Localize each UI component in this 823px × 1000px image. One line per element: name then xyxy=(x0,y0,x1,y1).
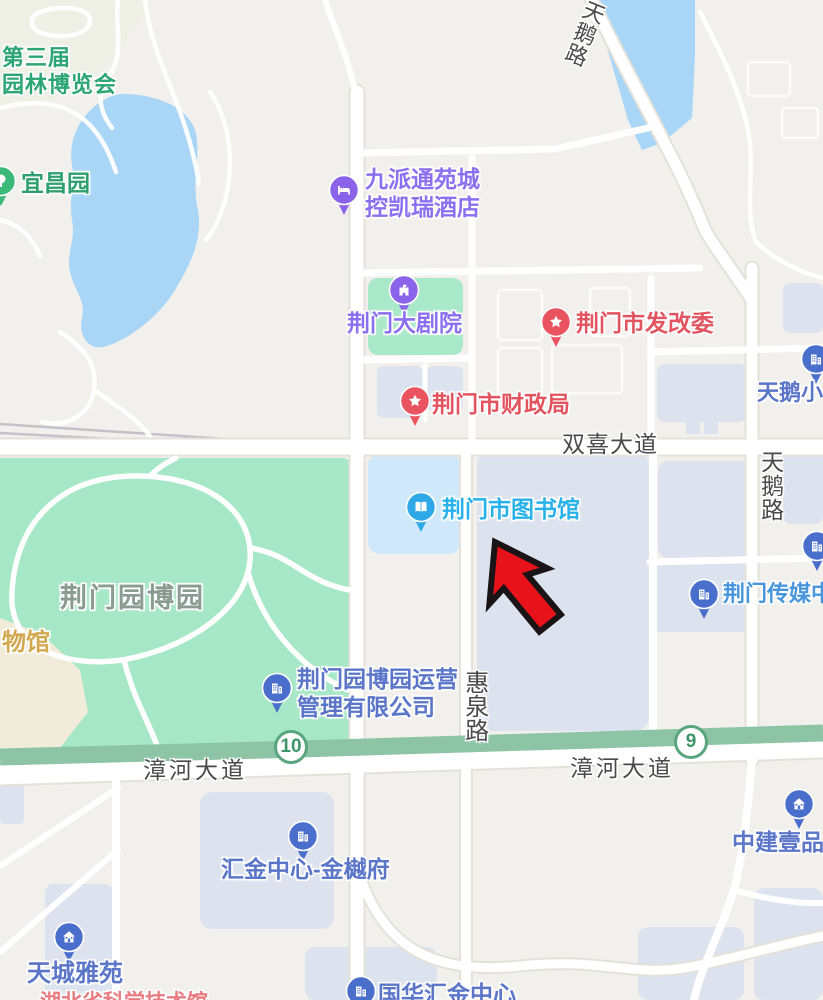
label-line: 荆门市财政局 xyxy=(432,391,570,419)
zhongjian-yipin-pin[interactable] xyxy=(782,788,816,830)
map-canvas[interactable]: 宜昌园九派通苑城控凯瑞酒店荆门大剧院荆门市发改委荆门市财政局荆门市图书馆荆门园博… xyxy=(0,0,823,1000)
book-icon xyxy=(416,502,427,512)
label-line: 管理有限公司 xyxy=(297,694,458,722)
label-line: 汇金中心-金樾府 xyxy=(221,856,390,884)
tiancheng-yayuan-label[interactable]: 天城雅苑 xyxy=(27,960,123,989)
yunying-company-label[interactable]: 荆门园博园运营管理有限公司 xyxy=(297,666,458,721)
jiupai-hotel-label[interactable]: 九派通苑城控凯瑞酒店 xyxy=(365,166,480,221)
map-overlay: 宜昌园九派通苑城控凯瑞酒店荆门大剧院荆门市发改委荆门市财政局荆门市图书馆荆门园博… xyxy=(0,0,823,1000)
guohua-huijin-label[interactable]: 国华汇金中心 xyxy=(378,981,516,1000)
label-line: 中建壹品 xyxy=(732,829,823,857)
area-label: 物馆 xyxy=(2,629,50,658)
jiupai-hotel-pin[interactable] xyxy=(327,174,361,216)
city-library-pin[interactable] xyxy=(404,491,438,533)
tiane-xiaoqu-label[interactable]: 天鹅小区 xyxy=(757,380,823,406)
media-center-pin[interactable] xyxy=(687,578,721,620)
caizhengju-label[interactable]: 荆门市财政局 xyxy=(432,391,570,419)
road-label: 漳河大道 xyxy=(143,757,247,785)
route-shield: 10 xyxy=(274,730,308,764)
tiane-xiaoqu-pin[interactable] xyxy=(799,343,823,385)
area-label: 荆门园博园 xyxy=(60,582,205,614)
fagaiwei-label[interactable]: 荆门市发改委 xyxy=(576,310,714,338)
road-label: 天鹅路 xyxy=(558,0,608,70)
road-label: 天鹅路 xyxy=(756,450,784,522)
area-label: 湖北省科学技术馆 xyxy=(40,990,208,1000)
grand-theater-label[interactable]: 荆门大剧院 xyxy=(347,310,462,338)
label-line: 控凯瑞酒店 xyxy=(365,194,480,222)
label-line: 荆门市发改委 xyxy=(576,310,714,338)
label-line: 天城雅苑 xyxy=(27,960,123,989)
guohua-huijin-pin[interactable] xyxy=(344,975,378,1000)
huijin-center-label[interactable]: 汇金中心-金樾府 xyxy=(221,856,390,884)
label-line: 荆门市图书馆 xyxy=(442,496,580,524)
label-line: 九派通苑城 xyxy=(365,166,480,194)
caizhengju-pin[interactable] xyxy=(398,385,432,427)
media-center-label[interactable]: 荆门传媒中心 xyxy=(723,581,823,607)
label-line: 宜昌园 xyxy=(21,170,90,198)
edge-poi-pin[interactable] xyxy=(800,530,823,572)
zhongjian-yipin-label[interactable]: 中建壹品 xyxy=(732,829,823,857)
label-line: 荆门大剧院 xyxy=(347,310,462,338)
city-library-label[interactable]: 荆门市图书馆 xyxy=(442,496,580,524)
area-label: 第三届 xyxy=(2,45,71,71)
area-label: 园林博览会 xyxy=(2,72,117,98)
label-line: 荆门园博园运营 xyxy=(297,666,458,694)
label-line: 天鹅小区 xyxy=(757,380,823,406)
route-shield: 9 xyxy=(674,725,708,759)
yichang-garden-pin[interactable] xyxy=(0,165,18,207)
tiancheng-yayuan-pin[interactable] xyxy=(52,921,86,963)
yichang-garden-label[interactable]: 宜昌园 xyxy=(21,170,90,198)
road-label: 双喜大道 xyxy=(562,431,658,459)
label-line: 荆门传媒中心 xyxy=(723,581,823,607)
fagaiwei-pin[interactable] xyxy=(539,306,573,348)
yunying-company-pin[interactable] xyxy=(260,672,294,714)
label-line: 国华汇金中心 xyxy=(378,981,516,1000)
road-label: 漳河大道 xyxy=(570,755,674,783)
road-label: 惠泉路 xyxy=(459,670,488,742)
